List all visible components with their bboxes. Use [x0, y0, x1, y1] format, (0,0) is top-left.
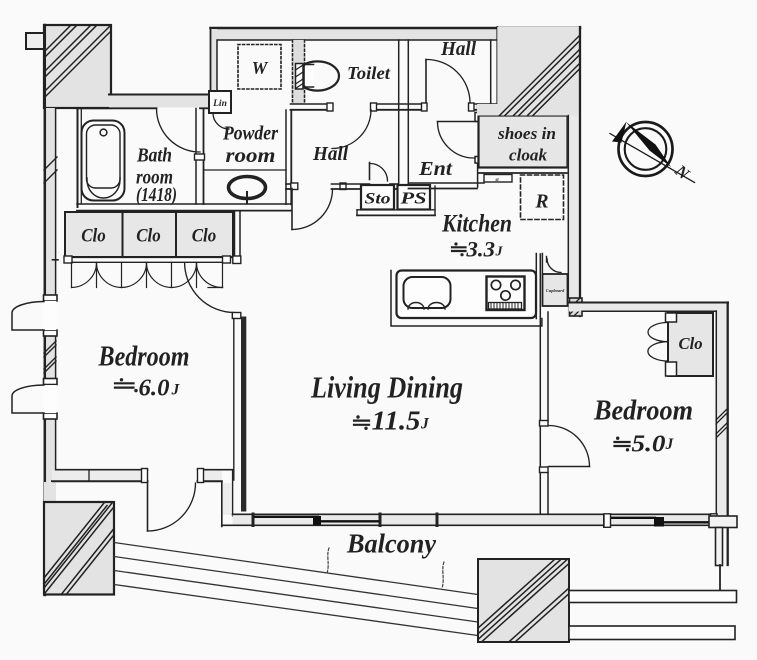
svg-text:Clo: Clo	[679, 334, 703, 353]
svg-text:Clo: Clo	[81, 226, 106, 247]
svg-text:PS: PS	[399, 189, 426, 208]
svg-text:(1418): (1418)	[136, 185, 177, 206]
svg-text:Bath: Bath	[136, 146, 172, 167]
svg-text:Bedroom: Bedroom	[98, 341, 190, 373]
svg-text:cloak: cloak	[509, 146, 547, 165]
svg-text:J: J	[171, 382, 181, 399]
svg-text:3.3: 3.3	[465, 237, 495, 262]
svg-text:Kitchen: Kitchen	[441, 211, 512, 238]
svg-text:Clo: Clo	[136, 226, 161, 247]
svg-text:Ent: Ent	[418, 158, 453, 180]
svg-text:J: J	[420, 416, 430, 433]
svg-text:J: J	[495, 245, 504, 260]
svg-text:Clo: Clo	[192, 226, 217, 247]
svg-text:shoes in: shoes in	[497, 124, 556, 143]
svg-text:Hall: Hall	[312, 143, 348, 165]
svg-text:st: st	[494, 178, 499, 183]
svg-text:J: J	[665, 436, 675, 453]
svg-text:Lin: Lin	[212, 99, 227, 109]
svg-text:Cupboard: Cupboard	[546, 288, 565, 293]
svg-text:Living Dining: Living Dining	[310, 371, 463, 405]
svg-text:R: R	[534, 192, 548, 213]
svg-text:room: room	[226, 145, 276, 167]
svg-text:Bedroom: Bedroom	[593, 395, 693, 427]
svg-text:5.0: 5.0	[632, 432, 666, 458]
svg-text:Powder: Powder	[222, 123, 278, 145]
svg-text:6.0: 6.0	[139, 376, 170, 402]
svg-text:W: W	[252, 58, 269, 78]
svg-text:11.5: 11.5	[372, 406, 421, 436]
svg-text:Balcony: Balcony	[346, 529, 437, 559]
svg-text:Sto: Sto	[365, 191, 391, 208]
svg-text:Hall: Hall	[440, 38, 476, 60]
svg-text:Toilet: Toilet	[347, 63, 391, 83]
